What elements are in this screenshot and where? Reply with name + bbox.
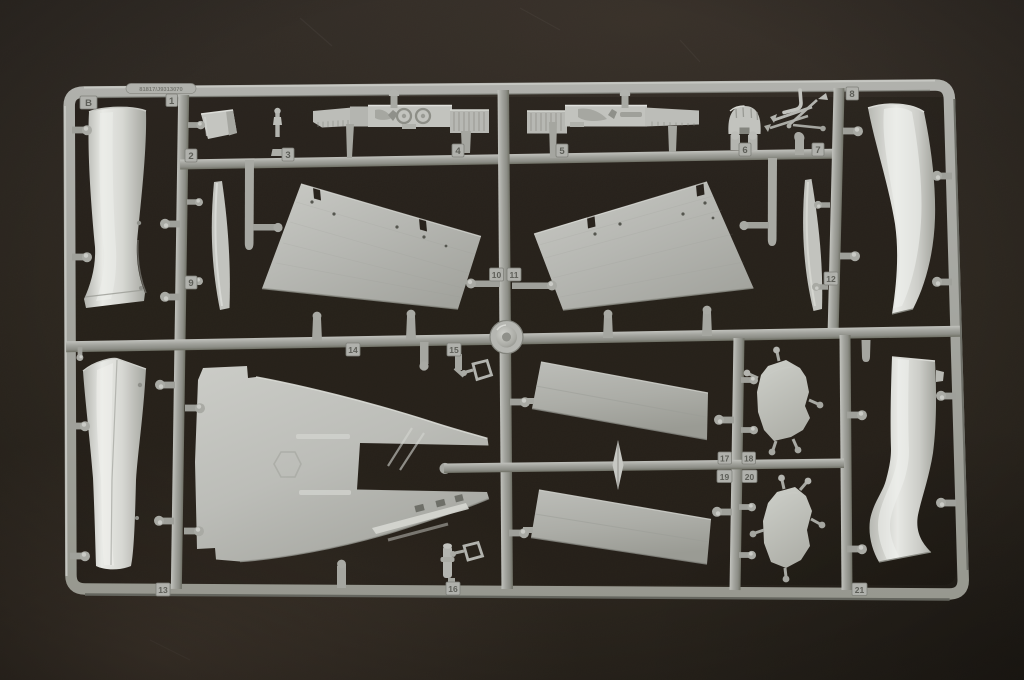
svg-text:3: 3 [285,150,290,161]
svg-text:15: 15 [449,345,459,355]
svg-text:5: 5 [559,146,565,157]
svg-text:2: 2 [188,151,193,162]
svg-text:81817/J9313070: 81817/J9313070 [139,87,183,93]
svg-text:19: 19 [720,472,730,482]
svg-text:9: 9 [188,278,193,289]
svg-text:20: 20 [745,472,755,482]
svg-text:16: 16 [448,584,458,594]
svg-text:13: 13 [158,585,168,595]
svg-text:12: 12 [826,274,836,284]
svg-text:8: 8 [849,89,854,100]
svg-text:1: 1 [169,96,175,107]
svg-text:17: 17 [720,454,730,464]
svg-text:21: 21 [855,585,865,595]
svg-text:4: 4 [455,146,461,157]
svg-text:18: 18 [744,454,754,464]
svg-text:7: 7 [815,145,820,156]
svg-text:B: B [85,98,92,109]
svg-text:11: 11 [510,270,519,280]
svg-text:10: 10 [492,270,502,280]
svg-text:14: 14 [348,345,358,355]
svg-text:6: 6 [742,145,747,156]
